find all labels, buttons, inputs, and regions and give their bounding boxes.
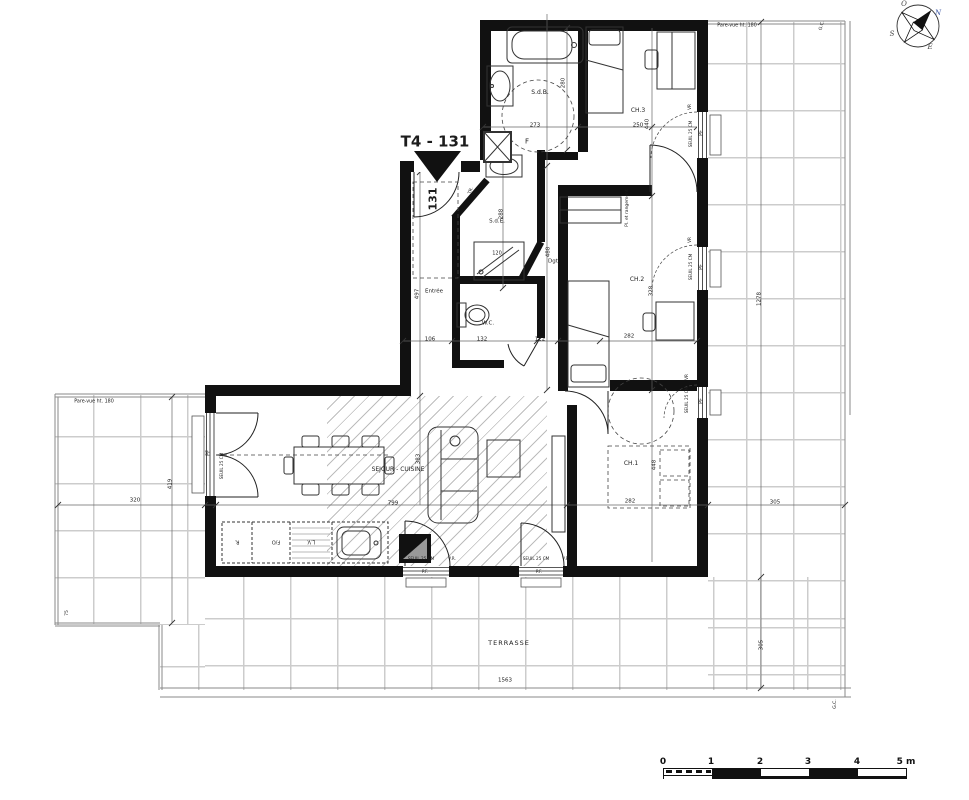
dim-305-right: 305 <box>770 500 781 506</box>
window-ch2 <box>652 245 721 290</box>
dimension-lines <box>58 14 845 688</box>
dim-419: 419 <box>168 479 174 490</box>
dim-132: 132 <box>477 337 488 343</box>
dining-table <box>294 447 384 484</box>
win-ch3-seuil: SEUIL 25 CM <box>689 121 693 147</box>
door-ch2 <box>565 391 608 434</box>
room-label-ch1: CH.1 <box>624 461 638 467</box>
plan-title: T4 - 131 <box>401 135 470 150</box>
pare-vue-left: Pare-vue ht. 180 <box>74 401 114 406</box>
dim-1278: 1278 <box>757 292 763 306</box>
dim-106: 106 <box>425 337 436 343</box>
scale-number: 1 <box>708 757 714 767</box>
dim-282-ch1: 282 <box>625 499 636 505</box>
scale-number: 3 <box>805 757 811 767</box>
scale-number: 2 <box>757 757 763 767</box>
furniture <box>222 27 695 563</box>
scale-number: 5 m <box>897 757 916 767</box>
terrace-boundaries <box>55 21 851 697</box>
dimension-ticks <box>55 19 848 691</box>
desk-ch3 <box>645 32 695 89</box>
door-b2-seuil: SEUIL 25 CM <box>523 557 549 561</box>
duct-f: F <box>525 139 529 146</box>
duct-shaft <box>484 132 511 162</box>
kitchen-oven: F/O <box>272 539 281 544</box>
room-label-ch2: CH.2 <box>630 277 644 283</box>
win-ch2-seuil: SEUIL 25 CM <box>689 254 693 280</box>
win-ch2-pf: PF <box>701 264 706 270</box>
room-label-terrasse: TERRASSE <box>488 640 530 647</box>
desk-ch2 <box>643 302 694 340</box>
dim-488: 488 <box>546 247 552 258</box>
dim-497: 497 <box>415 289 421 300</box>
room-label-dgt: Dgt <box>548 259 558 265</box>
dim-75: 75 <box>66 610 71 616</box>
sofa <box>428 427 478 523</box>
dim-383: 383 <box>416 454 422 465</box>
wardrobe-ch2 <box>560 197 621 223</box>
dim-250: 250 <box>633 123 644 129</box>
dim-288: 288 <box>499 209 505 220</box>
window-ch3 <box>651 112 721 158</box>
compass-letter-N: N <box>935 9 941 17</box>
pare-vue-right: Pare-vue ht. 180 <box>717 25 757 30</box>
compass-letter-O: O <box>901 0 907 8</box>
coffee-table <box>487 440 520 477</box>
dim-799: 799 <box>388 501 399 507</box>
future-bed-ch1-a <box>660 450 689 476</box>
scale-bar <box>663 768 907 779</box>
future-room-ch1 <box>608 446 690 508</box>
dim-320: 320 <box>130 498 141 504</box>
door-b2-pf: P.F. <box>536 570 542 574</box>
door-left-pf: PF <box>208 450 213 456</box>
door-b2-vr: V.R. <box>562 557 570 561</box>
door-left-seuil: SEUIL 25 CM <box>220 453 224 479</box>
dim-305-bottom: 305 <box>759 640 765 651</box>
washbasin-sdb <box>487 66 513 106</box>
door-b1-vr: V.R. <box>448 557 456 561</box>
room-label-sejour-cuisine: SEJOUR - CUISINE <box>372 467 425 473</box>
sideboard <box>552 436 565 532</box>
future-bed-ch1-b <box>660 480 689 506</box>
bed-ch2 <box>568 281 609 387</box>
kitchen-dishwasher: L.V. <box>307 539 316 544</box>
chamfer-walls <box>454 180 541 278</box>
door-b1-seuil: SEUIL 25 CM <box>408 557 434 561</box>
dim-273: 273 <box>530 123 541 129</box>
room-label-sde: S.d.E. <box>489 219 505 225</box>
door-ch3 <box>650 145 697 192</box>
win-ch3-pf: PF <box>701 130 706 136</box>
windows <box>192 112 721 587</box>
scale-number: 0 <box>660 757 666 767</box>
win-ch1-vr: VR <box>685 374 689 380</box>
dim-448: 448 <box>652 460 658 471</box>
win-ch2-vr: VR <box>688 237 692 243</box>
dim-282-ch2: 282 <box>624 334 635 340</box>
floor-plan-page: 012345 m S.d.B.CH.3S.d.E.EntréeW.C.DgtCH… <box>0 0 969 800</box>
turning-circle-ch1 <box>608 378 674 444</box>
dim-1563: 1563 <box>498 678 512 684</box>
bed-ch3 <box>586 27 623 113</box>
room-label-entree: Entrée <box>425 289 443 295</box>
room-label-wc: W.C. <box>482 321 494 327</box>
door-b1-pf: P.F. <box>422 570 428 574</box>
gc-bottom: G.C. <box>834 699 839 709</box>
scale-number: 4 <box>854 757 860 767</box>
win-ch1-seuil: SEUIL 25 CM <box>685 387 689 413</box>
dim-440: 440 <box>645 119 651 130</box>
floorplan-drawing <box>0 0 969 800</box>
room-label-sdb: S.d.B. <box>531 90 548 96</box>
compass-letter-S: S <box>890 30 895 38</box>
kitchen-fridge: R. <box>235 539 240 544</box>
kitchen-sink <box>337 527 381 559</box>
win-ch1-pf: PF <box>701 398 706 404</box>
dim-280: 280 <box>561 78 567 89</box>
room-label-rangement: Pl. et rangement <box>626 189 631 227</box>
dim-328: 328 <box>649 286 655 297</box>
win-ch3-vr: VR <box>688 104 692 110</box>
bathtub <box>507 27 583 63</box>
door-number: 131 <box>428 188 439 211</box>
room-label-ch3: CH.3 <box>631 108 645 114</box>
dim-120-shower: 120 <box>492 252 502 257</box>
shower <box>474 242 524 280</box>
dim-122: 122 <box>535 337 546 343</box>
compass-letter-E: E <box>927 43 932 51</box>
